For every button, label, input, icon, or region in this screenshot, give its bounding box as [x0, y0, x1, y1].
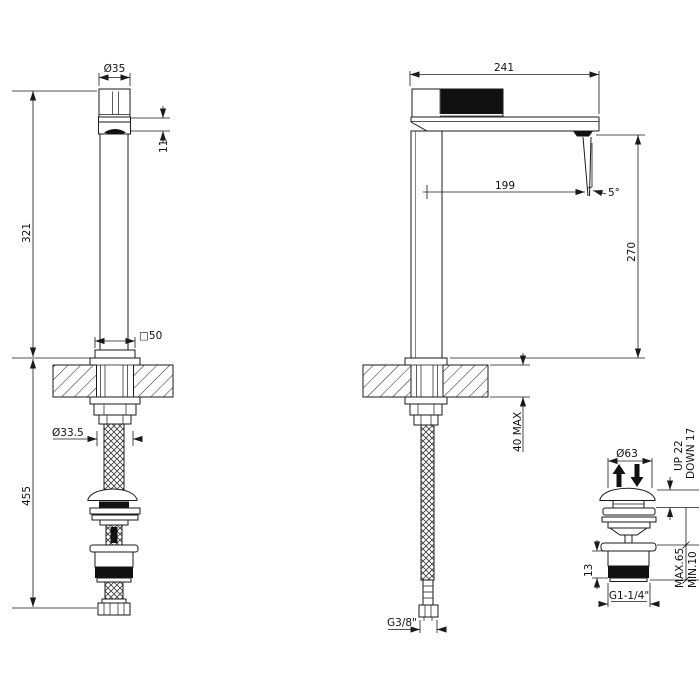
waste-thread-band-front — [95, 567, 133, 578]
waste-body — [608, 551, 649, 566]
deck-side — [363, 364, 488, 398]
dim-drain-up-travel: UP 22 — [673, 440, 685, 471]
drawing-svg: Ø35 11 321 455 □50 Ø33.5 — [0, 0, 700, 700]
waste-stem — [625, 535, 632, 543]
water-stream — [583, 137, 591, 196]
dim-outlet-height: 270 — [626, 242, 638, 262]
ext-heights — [12, 91, 97, 608]
handle-front — [99, 89, 130, 117]
ext-270 — [450, 135, 645, 358]
angle-leader — [593, 191, 606, 195]
waste-thread-band — [608, 566, 649, 578]
hose-end-nut-side — [419, 605, 438, 617]
dim-drain-down-travel: DOWN 17 — [685, 428, 697, 479]
cap-skirt-front — [99, 502, 129, 509]
waste-cyl — [608, 522, 650, 528]
waste-stem-core — [111, 527, 118, 543]
down-arrow-icon — [631, 464, 644, 487]
hose-nut-front — [99, 415, 131, 424]
neck-band — [99, 117, 131, 122]
deck-front — [53, 364, 173, 398]
hose-stem-side — [423, 580, 433, 605]
technical-drawing: Ø35 11 321 455 □50 Ø33.5 — [0, 0, 700, 700]
dim-drain-min-thickness: MIN.10 — [687, 551, 699, 588]
dim-drain-max-thickness: MAX.65 — [674, 548, 686, 588]
dim-stream-angle: 5° — [608, 187, 620, 199]
waste-cap-front — [88, 489, 137, 501]
under-deck-side — [405, 397, 447, 621]
dim-base-width: □50 — [139, 330, 162, 342]
ext-updown — [656, 490, 699, 508]
waste-taper — [610, 528, 647, 535]
popup-waste-front — [88, 489, 140, 582]
up-arrow-icon — [613, 464, 626, 487]
waste-seat-flange-front — [90, 545, 138, 552]
front-view: Ø35 11 321 455 □50 Ø33.5 — [12, 63, 173, 615]
waste-cap — [600, 488, 655, 500]
hose-end-nut — [98, 603, 130, 615]
ext-reach — [410, 71, 599, 114]
base-front — [95, 350, 135, 358]
dim-drain-thread: G1-1/4" — [609, 590, 649, 602]
waste-flange2-front — [92, 515, 138, 520]
dim-length-below-deck: 455 — [21, 486, 33, 506]
base-plate-front — [90, 358, 140, 365]
lock-nut-side — [410, 404, 442, 415]
dim-drain-thread-height: 13 — [583, 564, 595, 577]
ext-40max — [490, 365, 530, 397]
black-top-panel — [441, 90, 503, 115]
aerator-side — [573, 131, 593, 137]
waste-lip — [610, 578, 647, 582]
hose-collar — [102, 599, 126, 603]
dim-inlet-thread: G3/8" — [387, 617, 417, 629]
dim-shank-diameter: Ø33.5 — [52, 427, 84, 439]
dim-drain-cap-diameter: Ø63 — [616, 448, 638, 460]
lock-flange-side — [405, 397, 447, 404]
spout-blade — [411, 117, 599, 131]
dim-spout-reach: 241 — [494, 62, 514, 74]
dim-handle-diameter: Ø35 — [104, 63, 126, 75]
base-side — [405, 358, 447, 365]
dim-spout-tip-height: 11 — [158, 140, 170, 153]
under-deck-front — [90, 397, 140, 424]
hose-nut-side — [414, 415, 438, 425]
braided-hose-side — [421, 425, 434, 580]
waste-cyl-front — [100, 520, 128, 525]
braided-hose-upper — [104, 424, 124, 490]
faucet-front — [90, 89, 140, 365]
faucet-side — [405, 89, 599, 365]
mounting-hole-side — [411, 364, 443, 398]
waste-flange1-front — [90, 508, 140, 514]
waste-lip-front — [97, 578, 131, 582]
dim-height-above-deck: 321 — [21, 223, 33, 243]
dim-stream-offset: 199 — [495, 180, 515, 192]
body-column-front — [100, 134, 128, 350]
dim-max-deck-thickness: 40 MAX — [512, 412, 524, 452]
waste-seat-flange — [601, 543, 656, 551]
waste-body-front — [95, 552, 133, 567]
lock-flange-front — [90, 397, 140, 404]
lock-nut-front — [94, 404, 136, 415]
dims-front: Ø35 11 321 455 □50 Ø33.5 — [12, 63, 170, 608]
waste-flange2 — [602, 517, 656, 522]
waste-flange1 — [603, 508, 655, 515]
mounting-hole — [97, 364, 134, 398]
leader-spout-h — [130, 118, 170, 131]
drain-detail: Ø63 UP 22 DOWN 17 MAX.65 MIN.10 13 G1-1/… — [583, 428, 699, 607]
